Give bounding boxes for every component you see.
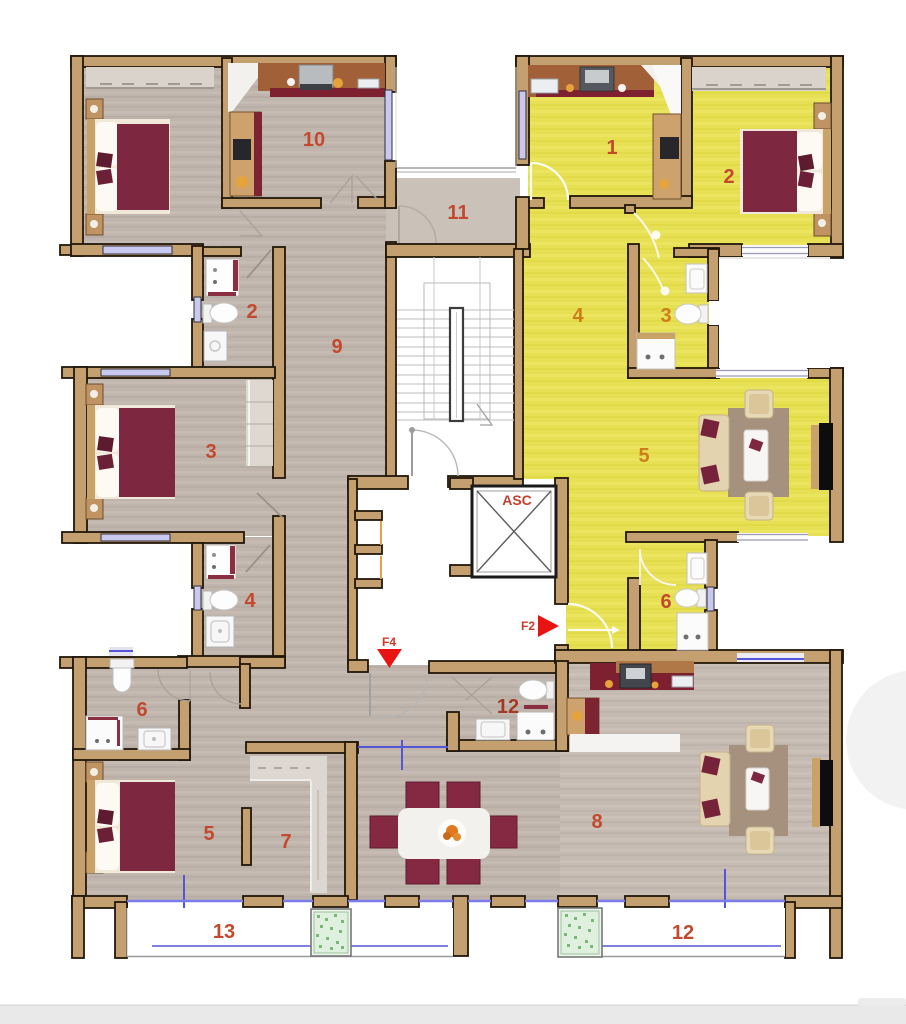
svg-text:3: 3 xyxy=(205,441,216,463)
svg-text:ASC: ASC xyxy=(502,492,532,508)
svg-text:13: 13 xyxy=(213,921,235,943)
svg-text:2: 2 xyxy=(246,301,257,323)
svg-text:4: 4 xyxy=(244,590,256,612)
svg-text:1: 1 xyxy=(606,137,617,159)
svg-text:5: 5 xyxy=(638,445,649,467)
svg-text:9: 9 xyxy=(331,336,342,358)
svg-text:2: 2 xyxy=(723,166,734,188)
svg-text:4: 4 xyxy=(572,305,584,327)
svg-text:6: 6 xyxy=(136,699,147,721)
svg-text:7: 7 xyxy=(280,831,291,853)
svg-text:6: 6 xyxy=(660,591,671,613)
svg-text:5: 5 xyxy=(203,823,214,845)
svg-text:F2: F2 xyxy=(521,619,535,633)
svg-text:10: 10 xyxy=(303,129,325,151)
svg-text:3: 3 xyxy=(660,305,671,327)
svg-text:12: 12 xyxy=(497,696,519,718)
svg-text:11: 11 xyxy=(447,202,468,224)
svg-text:8: 8 xyxy=(591,811,602,833)
svg-text:F4: F4 xyxy=(382,635,396,649)
svg-text:12: 12 xyxy=(672,922,694,944)
